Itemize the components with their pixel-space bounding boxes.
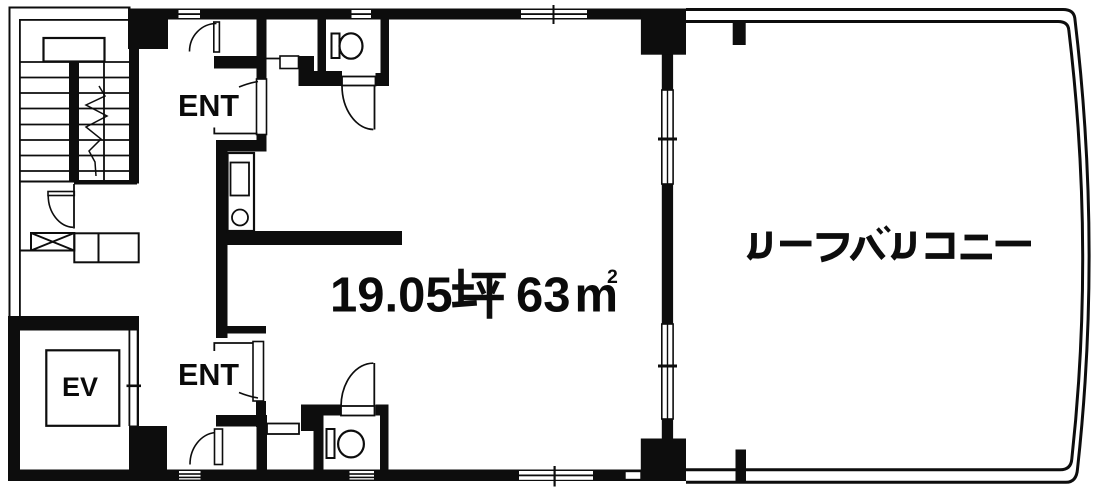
- svg-text:63: 63: [516, 269, 571, 323]
- svg-text:ENT: ENT: [178, 89, 239, 123]
- svg-text:EV: EV: [62, 372, 98, 402]
- svg-text:19.05: 19.05: [330, 269, 453, 323]
- svg-text:ENT: ENT: [178, 358, 239, 392]
- svg-text:2: 2: [607, 266, 618, 288]
